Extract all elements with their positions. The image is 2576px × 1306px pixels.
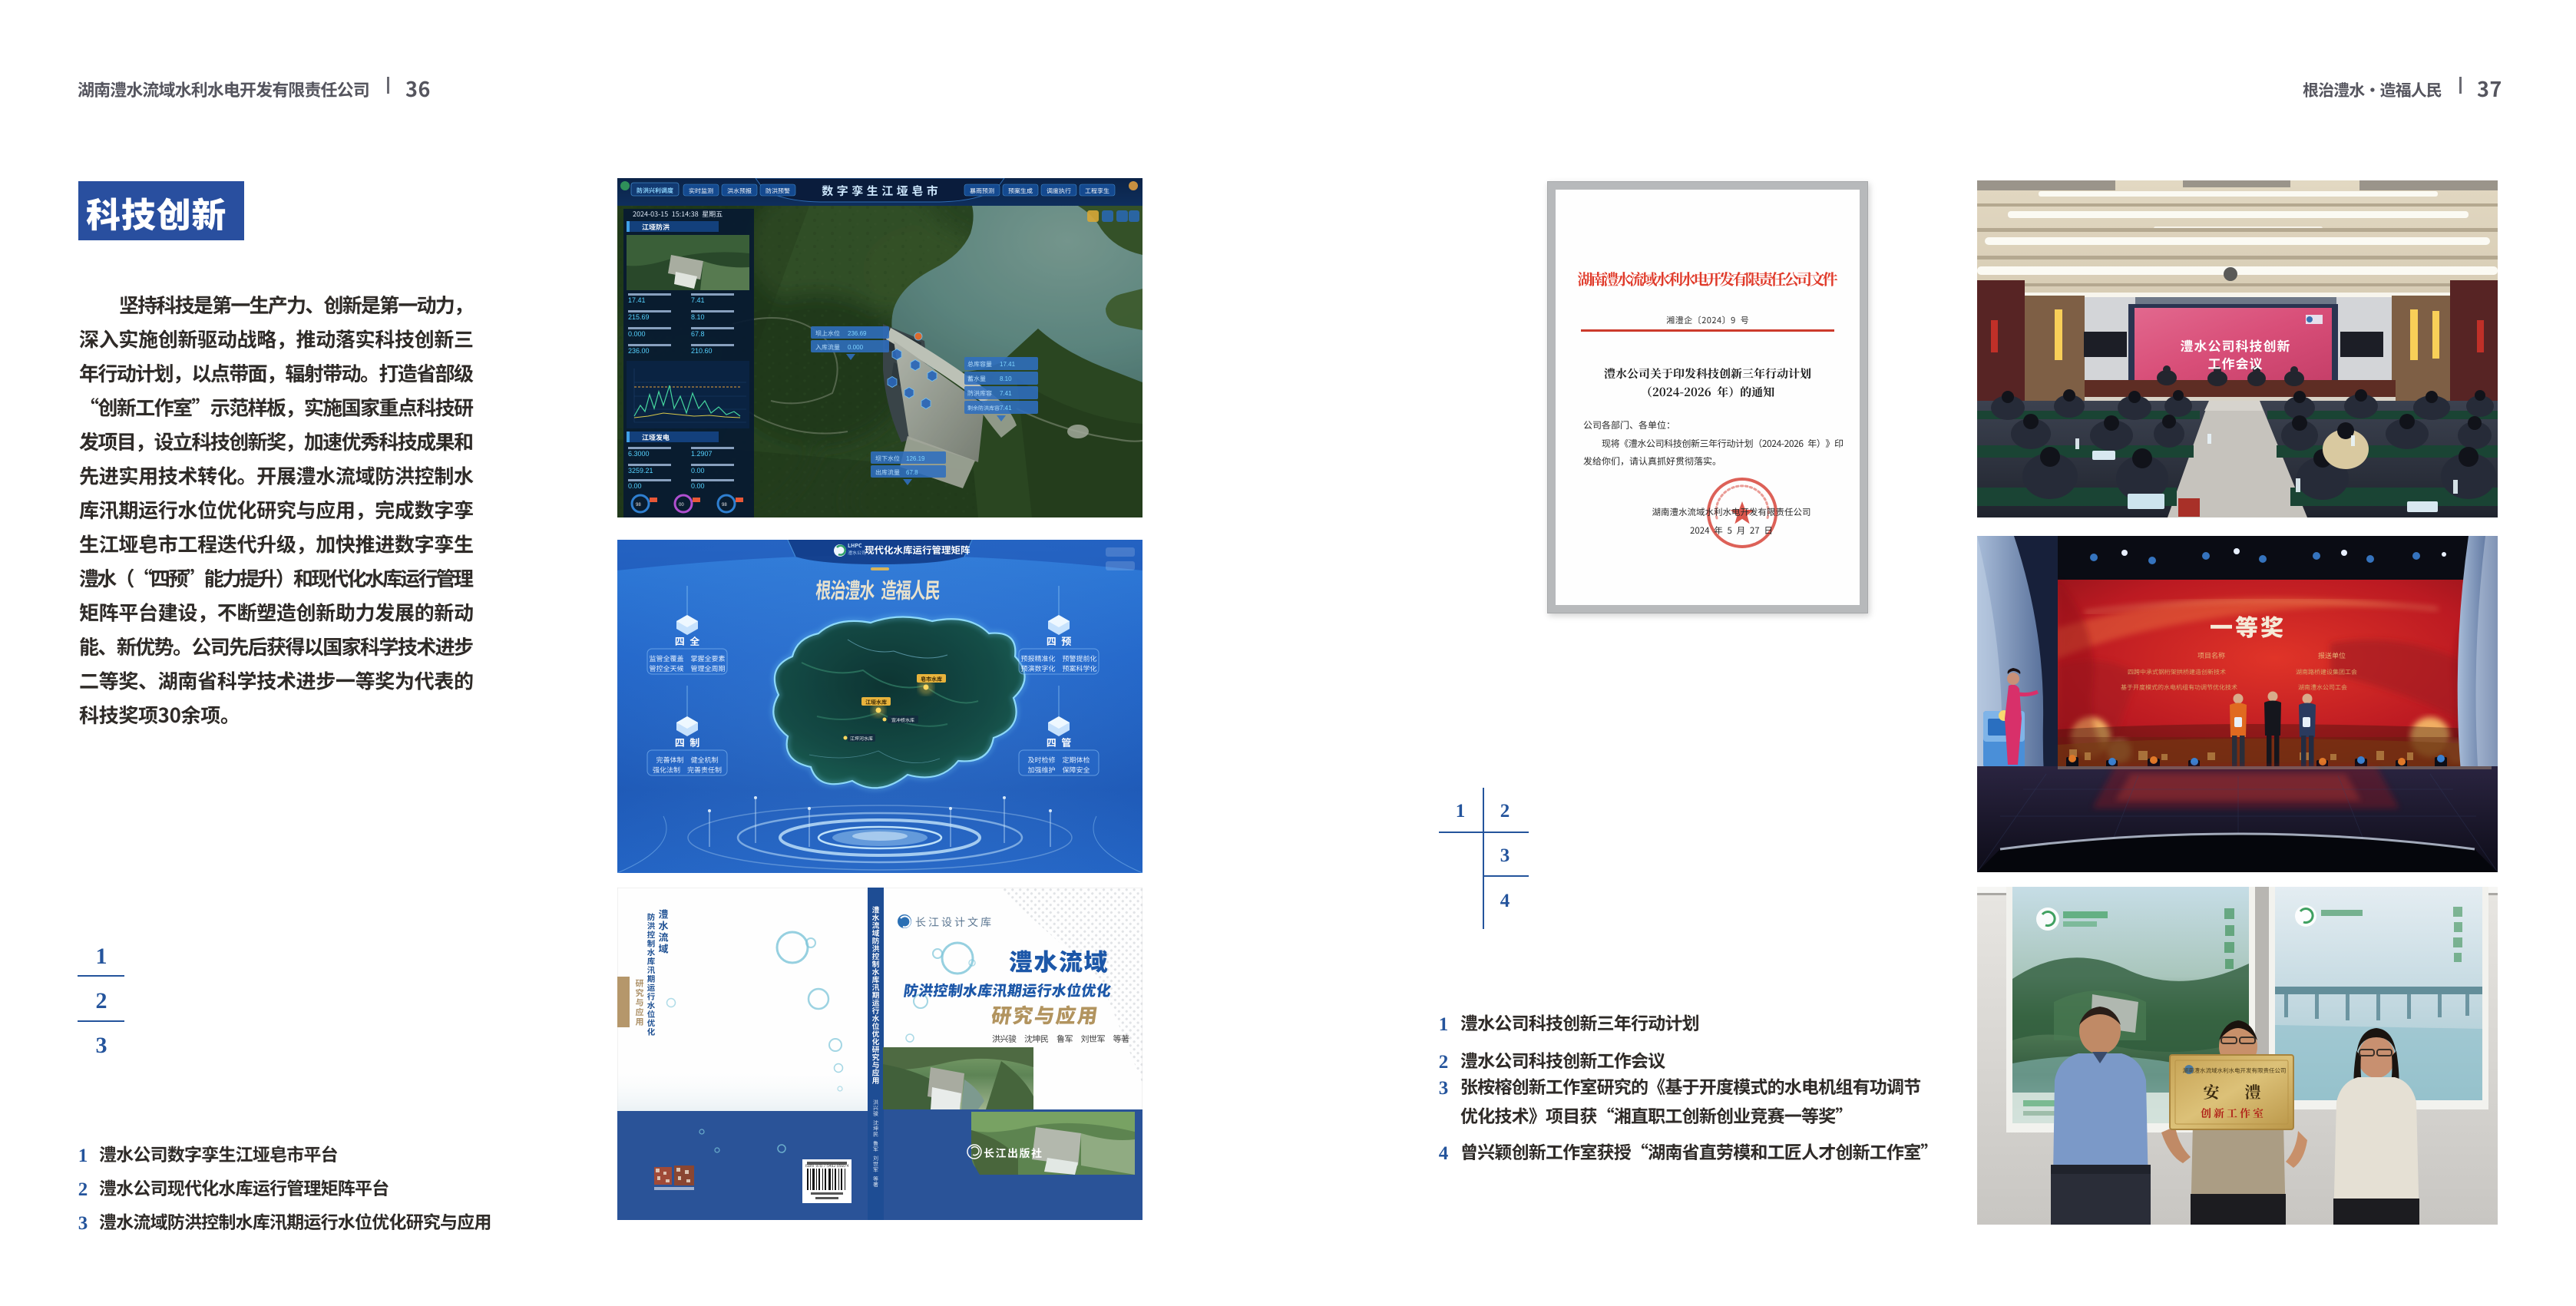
svg-text:17.41: 17.41 bbox=[1000, 361, 1016, 368]
svg-text:00: 00 bbox=[679, 503, 684, 508]
svg-text:215.69: 215.69 bbox=[628, 313, 650, 321]
svg-text:98: 98 bbox=[722, 503, 727, 508]
svg-text:210.60: 210.60 bbox=[691, 347, 713, 355]
svg-text:1.2907: 1.2907 bbox=[691, 450, 713, 458]
svg-text:8.10: 8.10 bbox=[691, 313, 705, 321]
svg-text:8.10: 8.10 bbox=[1000, 375, 1012, 382]
svg-text:67.8: 67.8 bbox=[691, 330, 705, 338]
svg-text:0.000: 0.000 bbox=[628, 330, 646, 338]
svg-text:0.00: 0.00 bbox=[691, 482, 705, 490]
svg-text:17.41: 17.41 bbox=[628, 296, 646, 304]
svg-text:236.00: 236.00 bbox=[628, 347, 650, 355]
svg-text:126.19: 126.19 bbox=[906, 455, 925, 462]
svg-text:3259.21: 3259.21 bbox=[628, 467, 653, 474]
svg-text:0.00: 0.00 bbox=[628, 482, 642, 490]
svg-text:7.41: 7.41 bbox=[1000, 390, 1012, 397]
svg-text:7.41: 7.41 bbox=[691, 296, 705, 304]
svg-text:0.00: 0.00 bbox=[691, 467, 705, 474]
svg-text:0.000: 0.000 bbox=[848, 344, 864, 351]
svg-text:67.8: 67.8 bbox=[906, 469, 918, 476]
svg-text:236.69: 236.69 bbox=[848, 330, 867, 337]
svg-text:6.3000: 6.3000 bbox=[628, 450, 650, 458]
svg-text:98: 98 bbox=[636, 503, 641, 508]
svg-text:7.41: 7.41 bbox=[1000, 405, 1012, 412]
